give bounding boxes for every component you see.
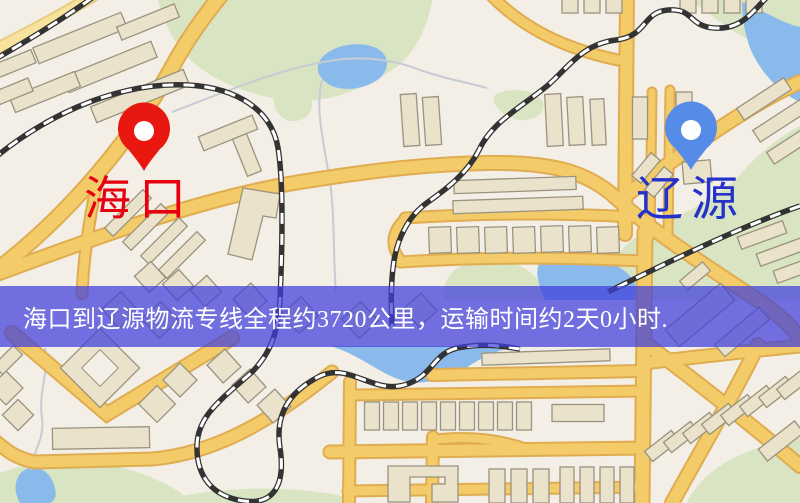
map-view[interactable]: 海口 辽源 海口到辽源物流专线全程约3720公里，运输时间约2天0小时. <box>0 0 800 503</box>
map-canvas[interactable] <box>0 0 800 503</box>
destination-label: 辽源 <box>636 177 746 224</box>
origin-label: 海口 <box>84 177 194 224</box>
route-info-banner: 海口到辽源物流专线全程约3720公里，运输时间约2天0小时. <box>0 286 800 347</box>
route-info-text: 海口到辽源物流专线全程约3720公里，运输时间约2天0小时. <box>0 299 668 334</box>
destination-pin-icon[interactable] <box>661 98 721 174</box>
origin-pin-icon[interactable] <box>114 99 174 175</box>
